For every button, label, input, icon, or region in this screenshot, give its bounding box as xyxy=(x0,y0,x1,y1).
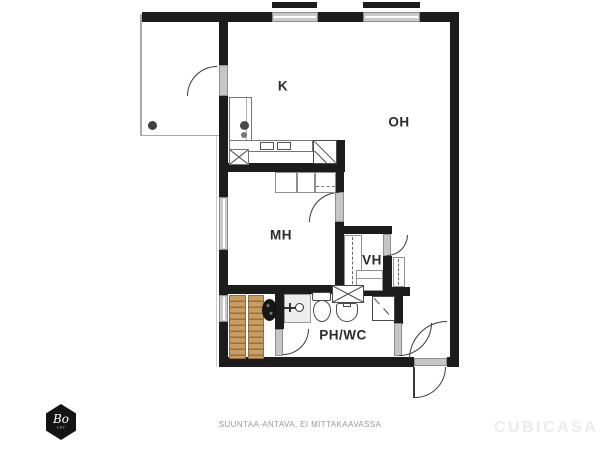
wardrobe xyxy=(275,172,297,193)
hallway-cabinet-shelf xyxy=(356,278,383,279)
closet-rod-line xyxy=(352,237,353,289)
cubicasa-watermark: CUBICASA xyxy=(494,419,598,437)
window-rail xyxy=(272,2,317,8)
wardrobe xyxy=(315,172,336,193)
disclaimer-text: SUUNTAA-ANTAVA, EI MITTAKAAVASSA xyxy=(150,420,450,429)
sauna-door-leaf xyxy=(275,329,283,356)
window xyxy=(219,295,228,322)
floor-drain-icon xyxy=(148,121,157,130)
wardrobe xyxy=(297,172,315,193)
kitchen-sink-faucet-icon xyxy=(240,121,249,130)
window xyxy=(272,12,318,22)
kitchen-sink-faucet-icon xyxy=(241,132,247,138)
room-label-kitchen: K xyxy=(278,79,288,94)
sauna-bench xyxy=(248,295,264,359)
stove-icon xyxy=(313,140,337,164)
room-label-bathroom: PH/WC xyxy=(319,328,367,343)
room-label-living-room: OH xyxy=(388,115,409,130)
agency-logo-subtitle: LKV xyxy=(57,426,65,429)
hob-burner-icon xyxy=(277,142,291,150)
entry-outer-door-arc xyxy=(415,367,446,398)
agency-logo-name: Bo xyxy=(53,413,69,425)
entry-door-threshold xyxy=(414,358,447,366)
balcony-door-leaf xyxy=(219,65,228,96)
sink-tap-icon xyxy=(343,303,351,307)
balcony-outline-bottom xyxy=(140,135,220,137)
wall-bedroom-east xyxy=(335,172,344,192)
window-rail xyxy=(363,2,420,8)
window xyxy=(219,197,228,250)
exterior-outline-left xyxy=(216,136,217,367)
shower-faucet-icon xyxy=(289,303,291,312)
wall-bottom xyxy=(447,357,459,367)
room-label-hallway: VH xyxy=(362,253,382,268)
closet xyxy=(393,257,405,287)
agency-logo: Bo LKV xyxy=(46,404,76,440)
wall-hallway-top xyxy=(344,226,392,234)
sauna-bench xyxy=(229,295,246,359)
bedroom-door-arc xyxy=(309,192,339,222)
balcony-outline-left xyxy=(140,14,142,136)
sauna-door-arc xyxy=(283,329,309,355)
hallway-door-arc xyxy=(387,235,408,256)
window xyxy=(363,12,420,22)
wall-left xyxy=(219,12,228,65)
wall-left xyxy=(219,96,228,197)
balcony-door-arc xyxy=(187,66,217,96)
wall-bedroom-east xyxy=(335,222,344,294)
hob-burner-icon xyxy=(260,142,274,150)
toilet-icon xyxy=(313,300,331,322)
floor-plan: K OH MH VH PH/WC Bo LKV SUUNTAA-ANTAVA, … xyxy=(0,0,600,450)
wall-stove-stub xyxy=(336,140,345,163)
wall-right xyxy=(450,12,459,367)
wall-bathroom-east xyxy=(394,294,403,324)
shower-stall-icon xyxy=(372,296,395,321)
wardrobe-sliding-line xyxy=(316,186,335,187)
dishwasher-icon xyxy=(229,149,249,165)
washing-machine-icon xyxy=(332,285,364,303)
closet-rod-line xyxy=(398,259,399,285)
entry-outer-door-leaf xyxy=(413,367,415,398)
sauna-stove-icon xyxy=(262,299,277,321)
shower-head-icon xyxy=(295,303,304,312)
room-label-bedroom: MH xyxy=(270,228,292,243)
